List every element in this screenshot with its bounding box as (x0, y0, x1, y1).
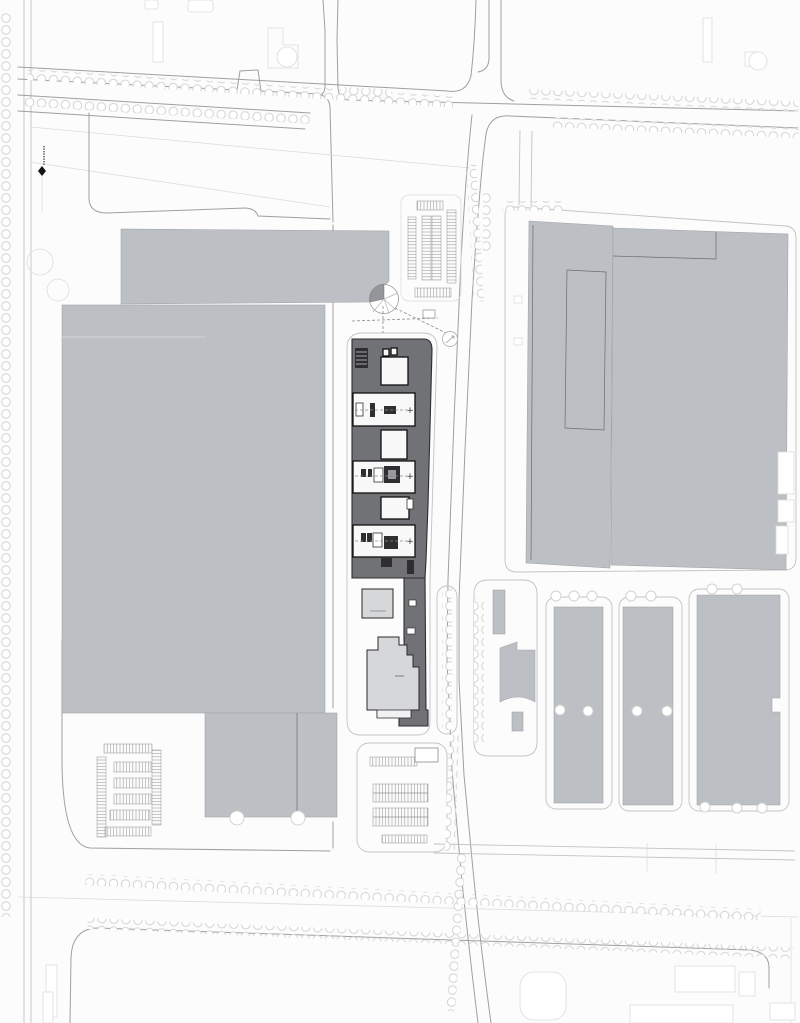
pavilion-2 (381, 430, 407, 459)
survey-diamond-icon (38, 166, 46, 176)
target-cross-icon: + (406, 406, 414, 416)
left-campus (62, 229, 399, 837)
pavilion-3 (381, 497, 409, 519)
central-plinth-district: + + + (352, 306, 458, 734)
left-campus-parking-stalls (97, 744, 161, 837)
right-campus-east-slab (611, 228, 788, 570)
pavilion-1 (381, 357, 408, 385)
right-campus (514, 221, 794, 570)
site-plan-drawing: + + + (0, 0, 800, 1023)
left-campus-south-wing (205, 713, 337, 817)
bar-building-a: + (353, 393, 415, 426)
south-square-building (362, 589, 393, 618)
left-campus-north-building (121, 229, 389, 304)
right-campus-west-slab (526, 221, 613, 568)
left-campus-main-building (62, 305, 325, 713)
south-parking-lot (370, 748, 438, 843)
warehouse-bar-3 (697, 595, 780, 805)
southeast-lots (493, 584, 780, 813)
entry-plaza-circle (370, 284, 399, 314)
site-plan-canvas: + + + (0, 0, 800, 1023)
target-cross-icon: + (406, 537, 414, 547)
bar-building-b: + (353, 461, 415, 493)
north-parking-lot (408, 201, 456, 297)
bar-building-c: + (353, 525, 415, 557)
survey-marker (38, 146, 46, 213)
target-cross-icon: + (406, 472, 414, 482)
